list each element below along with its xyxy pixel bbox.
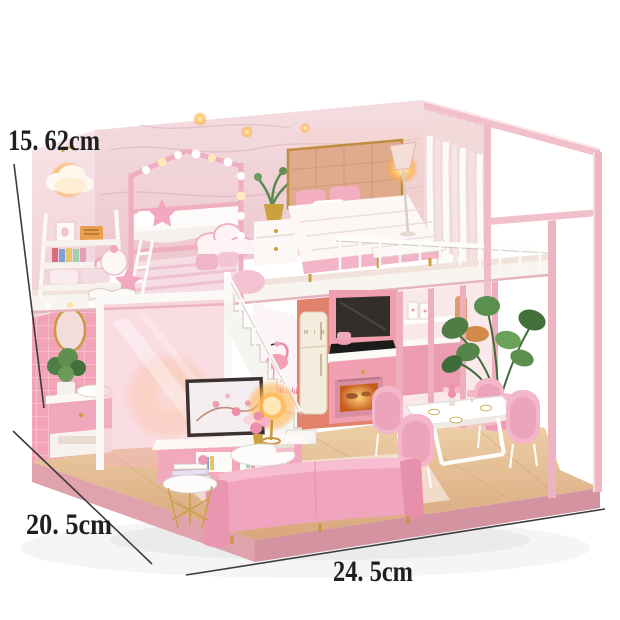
fridge: M I B <box>300 312 327 414</box>
books <box>52 248 86 262</box>
pillow <box>218 251 239 267</box>
fridge-brand-text: M I B <box>304 330 326 336</box>
height-label: 15. 62cm <box>8 124 100 157</box>
string-light-glow <box>241 126 253 138</box>
product-photo-dollhouse: Pink World M I B <box>0 0 620 620</box>
bathroom-mirror <box>55 309 85 351</box>
railing-post <box>224 272 231 302</box>
string-light-glow <box>300 123 310 133</box>
string-light-glow <box>193 112 207 126</box>
width-label: 24. 5cm <box>333 555 413 588</box>
pillow <box>195 253 218 270</box>
pink-mug <box>198 455 208 465</box>
depth-label: 20. 5cm <box>26 508 112 541</box>
dollhouse-illustration: Pink World M I B <box>0 0 620 620</box>
